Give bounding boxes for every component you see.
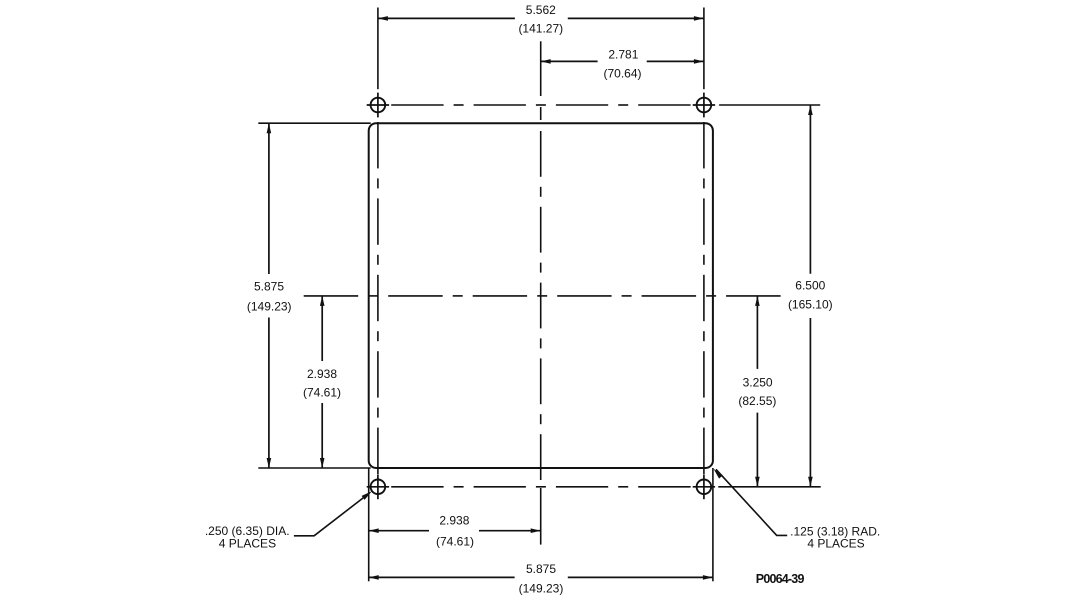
svg-text:5.562: 5.562 [526,3,556,17]
svg-text:(149.23): (149.23) [247,299,292,313]
svg-text:(165.10): (165.10) [788,298,833,312]
svg-text:5.875: 5.875 [254,280,284,294]
svg-text:4 PLACES: 4 PLACES [807,536,864,550]
svg-text:2.938: 2.938 [439,514,469,528]
svg-text:2.938: 2.938 [307,367,337,381]
svg-text:P0064-39: P0064-39 [756,572,805,586]
svg-text:2.781: 2.781 [608,48,638,62]
svg-text:(149.23): (149.23) [519,582,564,596]
svg-text:5.875: 5.875 [526,562,556,576]
svg-text:(141.27): (141.27) [518,22,563,36]
svg-text:4 PLACES: 4 PLACES [219,536,276,550]
svg-text:(70.64): (70.64) [603,67,641,81]
svg-text:(74.61): (74.61) [436,534,474,548]
svg-text:(74.61): (74.61) [303,386,341,400]
svg-text:6.500: 6.500 [795,278,825,292]
svg-text:(82.55): (82.55) [738,394,776,408]
svg-text:3.250: 3.250 [743,376,773,390]
